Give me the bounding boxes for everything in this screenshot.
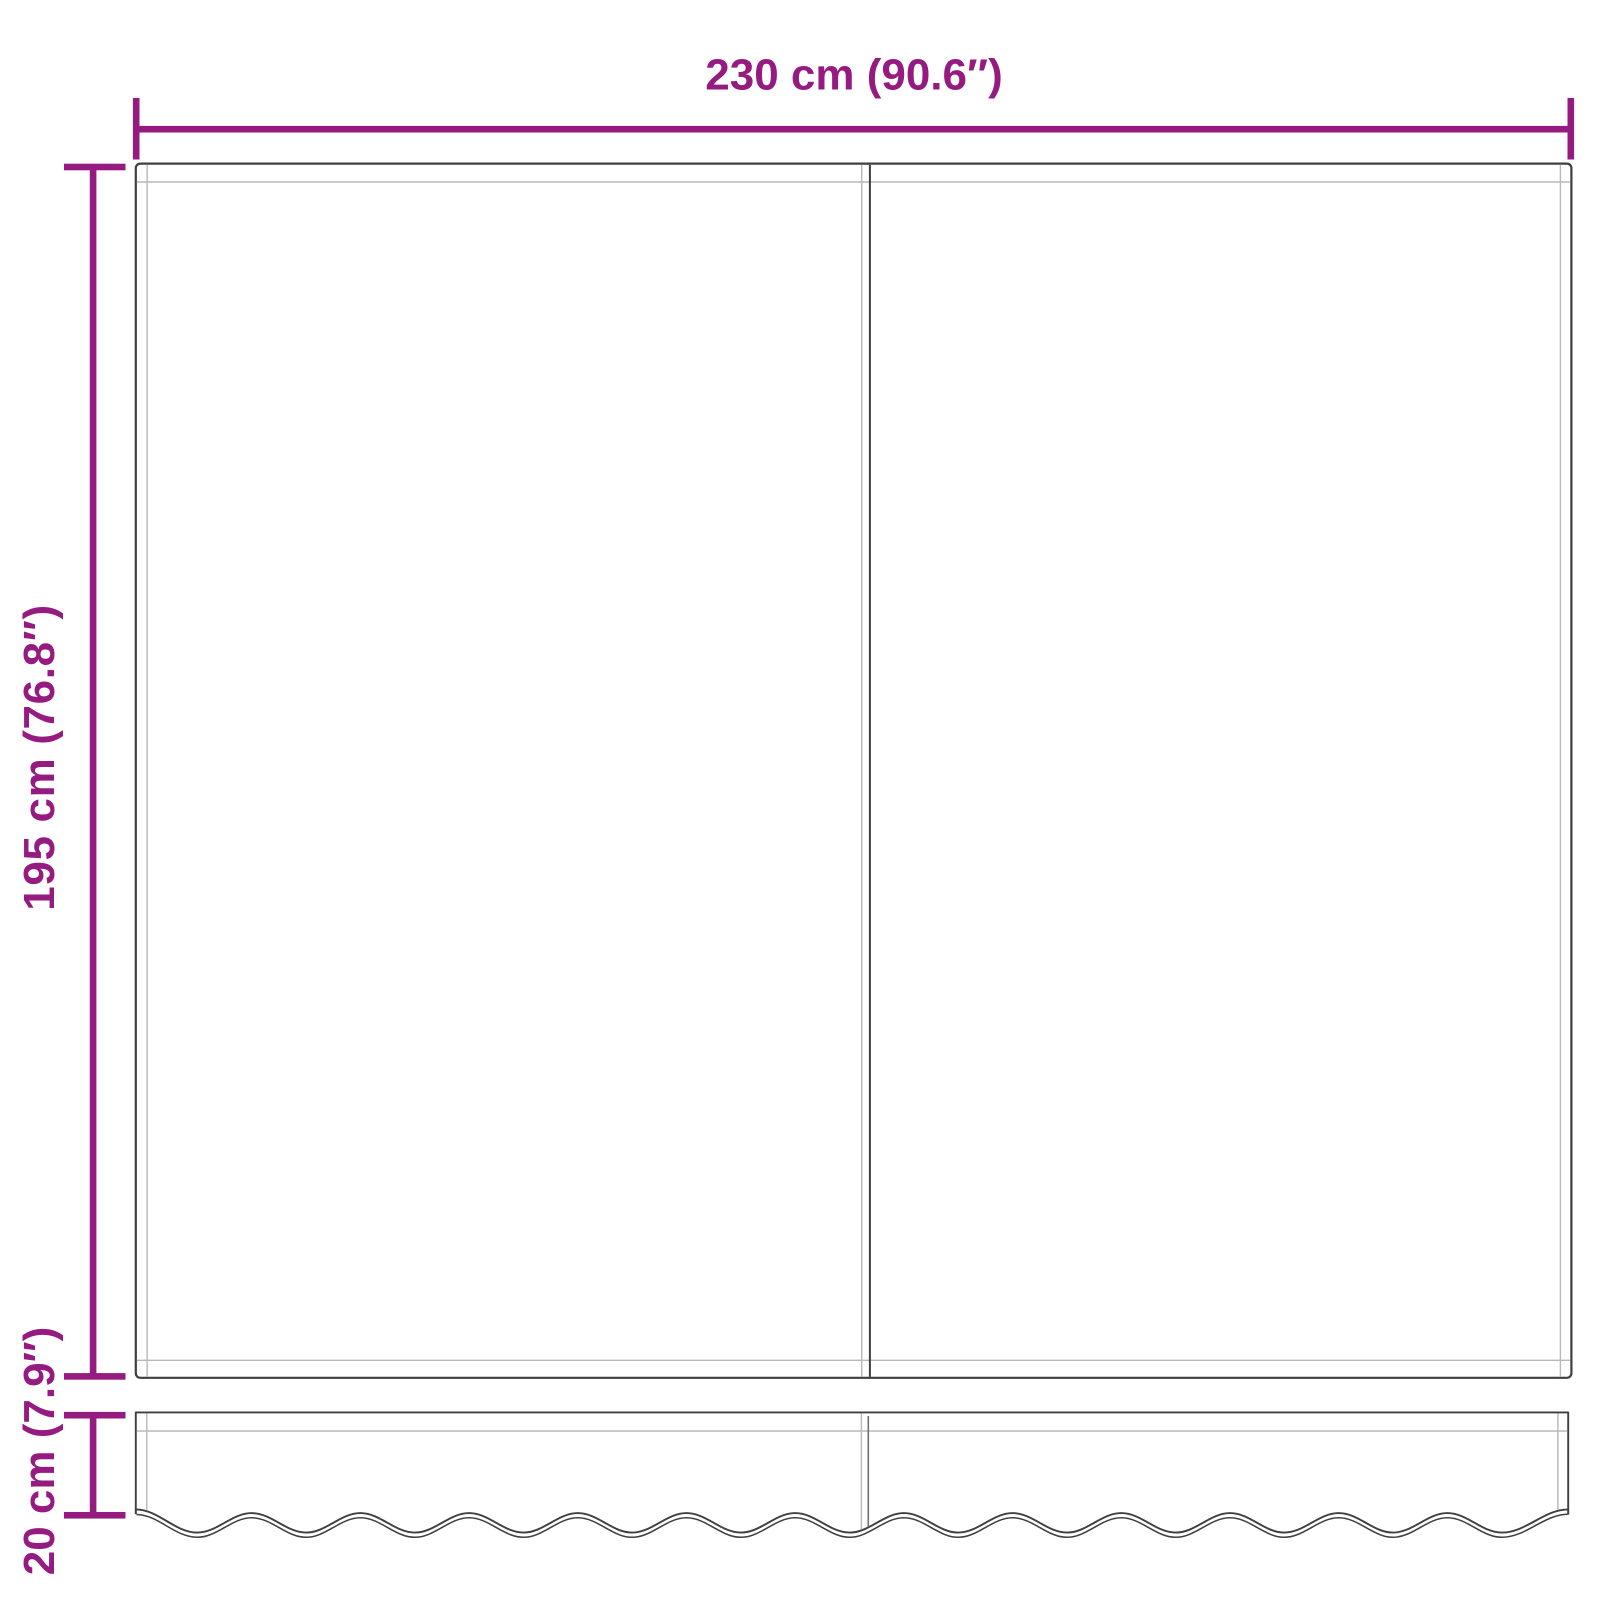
svg-text:195 cm (76.8″): 195 cm (76.8″) (15, 604, 64, 911)
svg-text:20 cm (7.9″): 20 cm (7.9″) (15, 1327, 64, 1576)
svg-text:230 cm (90.6″): 230 cm (90.6″) (705, 51, 1002, 100)
